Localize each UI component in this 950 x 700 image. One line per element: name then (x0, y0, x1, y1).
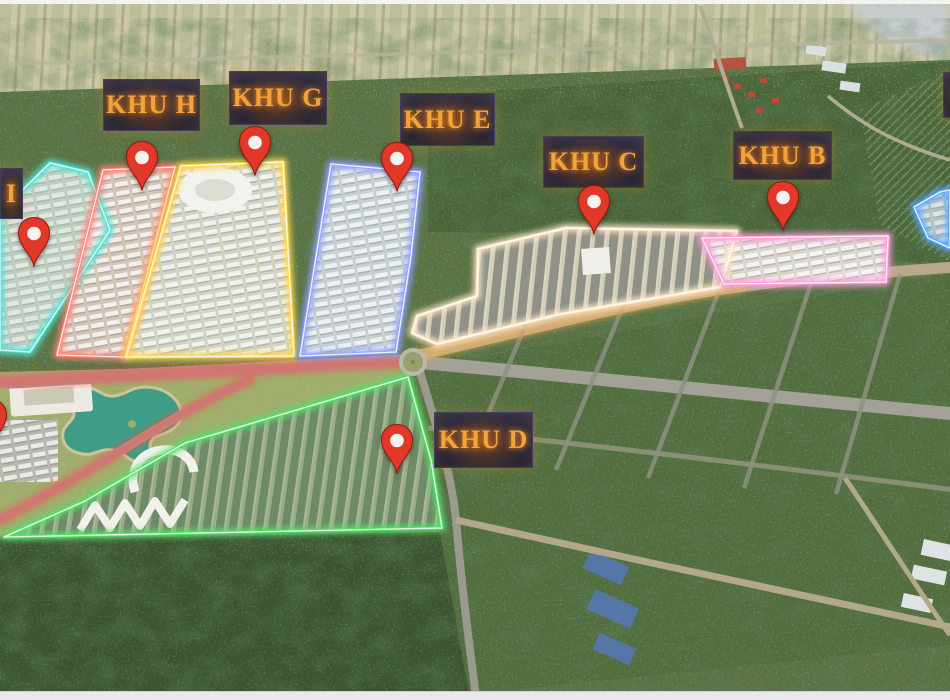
pin-hole (776, 191, 790, 205)
pin-body (768, 182, 799, 231)
pin-hole (27, 227, 41, 241)
map-pin-khu-h[interactable] (125, 140, 159, 192)
zone-label-text-khu-c: KHU C (549, 147, 639, 177)
zone-label-text-khu-g: KHU G (233, 83, 324, 113)
pin-body (579, 186, 610, 235)
map-pin-khu-c[interactable] (577, 184, 611, 236)
zone-label-text-khu-b: KHU B (738, 141, 826, 171)
pin-body (0, 400, 7, 449)
zone-label-khu-h[interactable]: KHU H (103, 79, 200, 131)
pin-body (240, 127, 271, 176)
masterplan-stage: I KHU H KHU G KHU E KHU C KHU B KHU D (0, 0, 950, 700)
map-pin-khu-b[interactable] (766, 180, 800, 232)
zone-label-khu-e[interactable]: KHU E (400, 93, 495, 146)
zone-label-text-khu-d: KHU D (439, 425, 529, 455)
pin-hole (248, 136, 262, 150)
zone-label-east-partial[interactable] (943, 72, 950, 118)
zone-label-khu-g[interactable]: KHU G (229, 71, 327, 125)
pin-body (127, 142, 158, 191)
map-pin-khu-e[interactable] (380, 141, 414, 193)
map-pin-khu-i[interactable] (17, 216, 51, 268)
pin-body (382, 425, 413, 474)
pin-hole (390, 434, 404, 448)
zone-label-text-khu-h: KHU H (106, 90, 197, 120)
zone-label-khu-c[interactable]: KHU C (543, 136, 644, 188)
zone-label-khu-i[interactable]: I (0, 168, 23, 219)
pin-body (382, 143, 413, 192)
map-pin-west-partial[interactable] (0, 398, 8, 450)
pin-hole (135, 151, 149, 165)
pin-body (19, 218, 50, 267)
map-pin-khu-d[interactable] (380, 423, 414, 475)
pin-hole (587, 195, 601, 209)
zone-label-text-khu-i: I (6, 179, 17, 209)
pin-hole (390, 152, 404, 166)
map-pin-khu-g[interactable] (238, 125, 272, 177)
zone-label-khu-b[interactable]: KHU B (733, 131, 832, 180)
zone-label-text-khu-e: KHU E (403, 105, 491, 135)
roundabout (401, 350, 425, 374)
zone-label-khu-d[interactable]: KHU D (434, 412, 533, 468)
